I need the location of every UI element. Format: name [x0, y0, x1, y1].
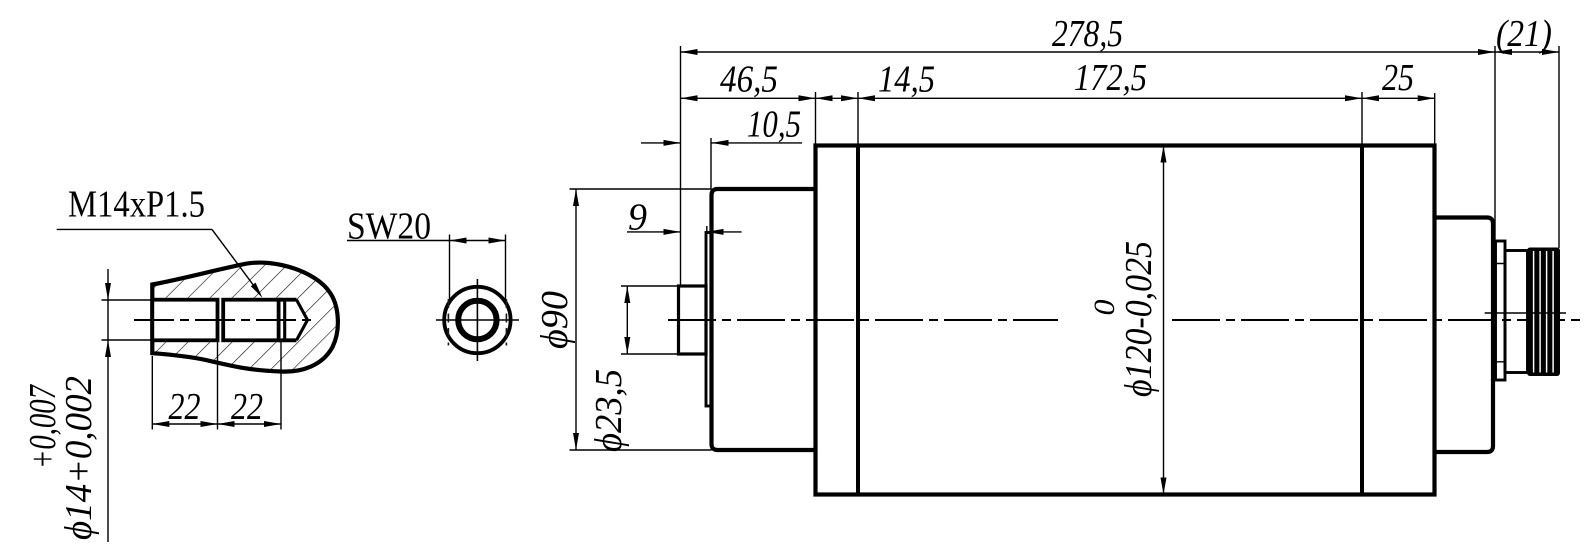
- svg-text:46,5: 46,5: [720, 59, 778, 101]
- svg-text:278,5: 278,5: [1052, 13, 1123, 55]
- svg-text:0: 0: [1088, 300, 1121, 316]
- svg-text:ϕ14+0,002: ϕ14+0,002: [58, 376, 100, 540]
- svg-text:22: 22: [169, 386, 201, 428]
- svg-text:14,5: 14,5: [878, 59, 935, 101]
- svg-text:ϕ90: ϕ90: [534, 291, 576, 349]
- svg-text:ϕ120-0,025: ϕ120-0,025: [1118, 241, 1160, 397]
- svg-text:ϕ23,5: ϕ23,5: [588, 369, 630, 452]
- svg-text:25: 25: [1382, 57, 1414, 99]
- svg-text:SW20: SW20: [347, 206, 431, 248]
- svg-text:172,5: 172,5: [1074, 57, 1147, 99]
- svg-text:(21): (21): [1496, 13, 1552, 55]
- svg-text:M14xP1.5: M14xP1.5: [68, 184, 205, 226]
- svg-text:10,5: 10,5: [747, 104, 801, 146]
- svg-text:22: 22: [231, 386, 263, 428]
- svg-text:9: 9: [628, 197, 647, 239]
